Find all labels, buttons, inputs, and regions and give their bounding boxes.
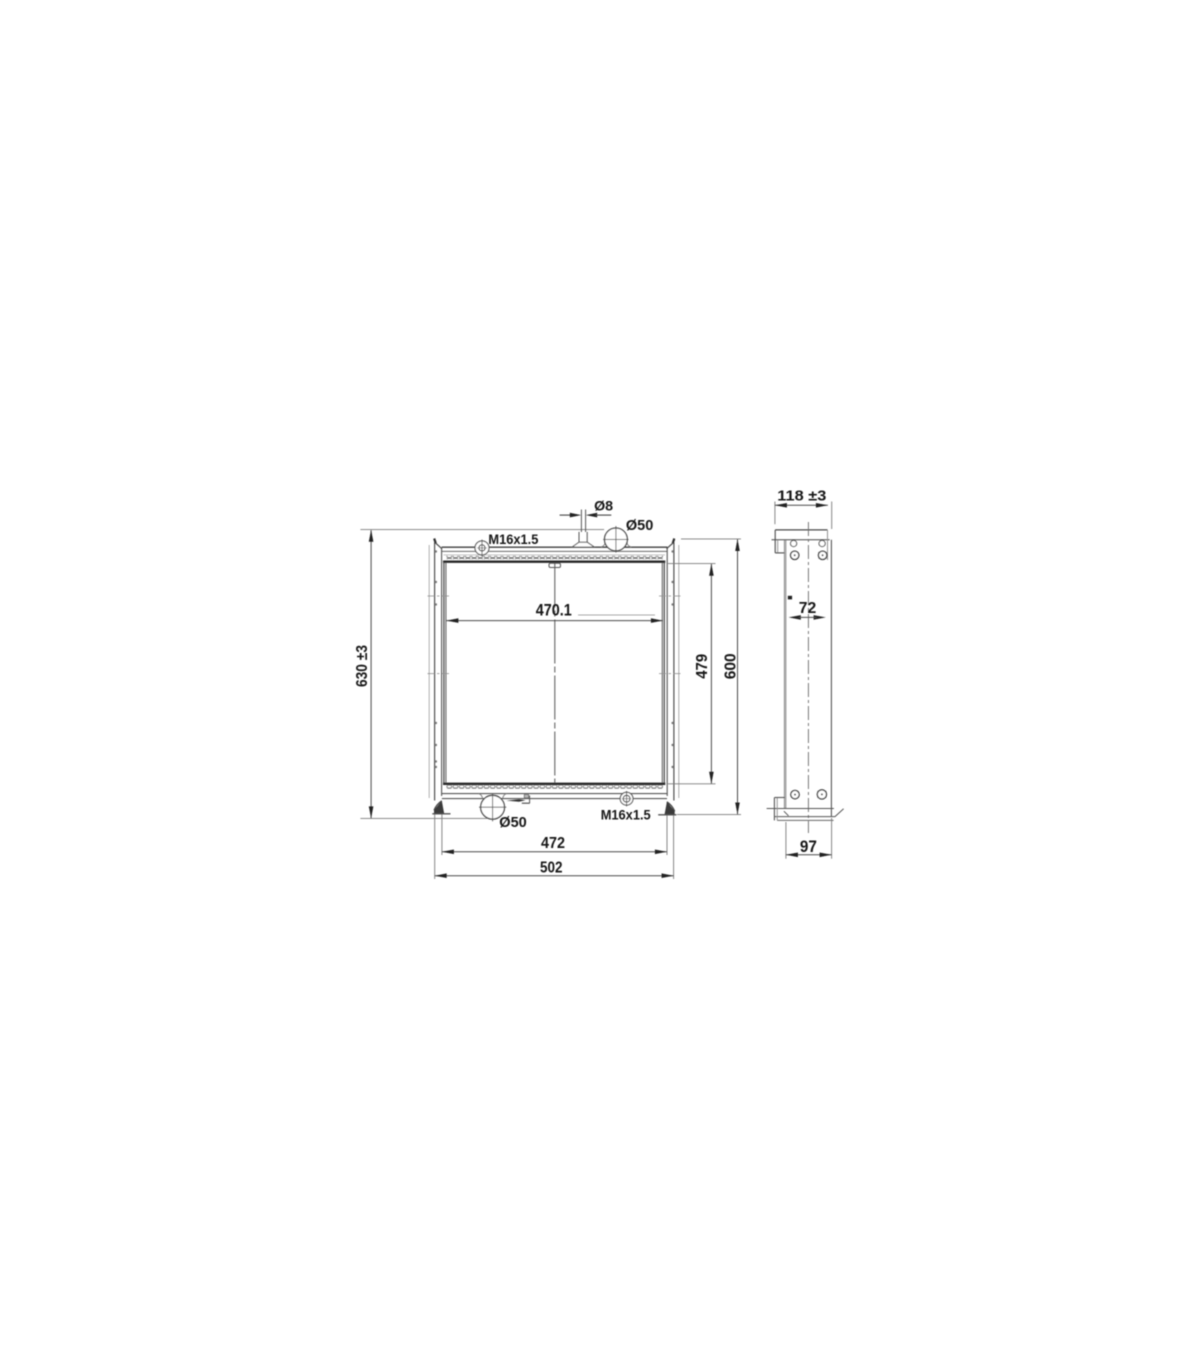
svg-text:M16x1.5: M16x1.5 — [488, 531, 538, 547]
svg-text:470.1: 470.1 — [536, 601, 572, 619]
svg-text:97: 97 — [800, 838, 817, 856]
svg-text:502: 502 — [540, 860, 563, 877]
svg-text:600: 600 — [723, 653, 740, 679]
svg-text:Ø50: Ø50 — [499, 814, 527, 831]
svg-text:M16x1.5: M16x1.5 — [601, 806, 651, 822]
svg-text:479: 479 — [694, 654, 711, 679]
svg-text:630 ±3: 630 ±3 — [354, 645, 371, 687]
svg-text:72: 72 — [799, 600, 817, 617]
svg-text:118 ±3: 118 ±3 — [777, 488, 826, 505]
svg-text:472: 472 — [541, 835, 565, 852]
svg-text:Ø50: Ø50 — [626, 517, 654, 534]
svg-text:Ø8: Ø8 — [594, 497, 613, 513]
